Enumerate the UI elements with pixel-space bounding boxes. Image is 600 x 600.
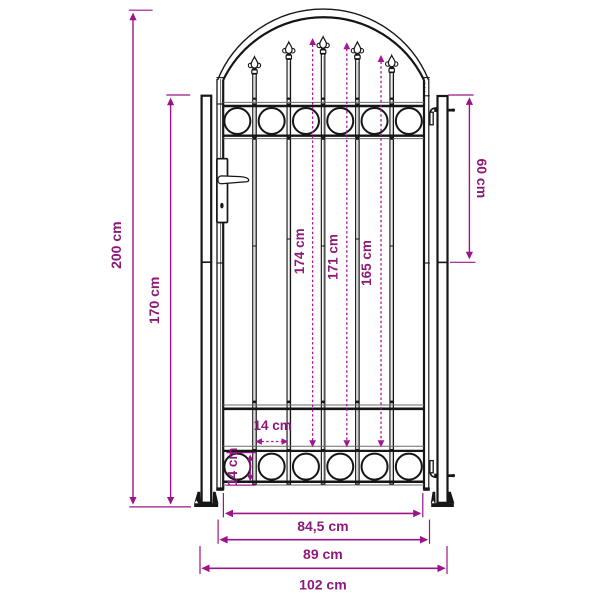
svg-text:84,5 cm: 84,5 cm — [297, 518, 348, 534]
svg-text:171 cm: 171 cm — [325, 234, 340, 280]
svg-text:200 cm: 200 cm — [108, 221, 124, 268]
svg-text:165 cm: 165 cm — [359, 240, 374, 286]
svg-text:102 cm: 102 cm — [299, 577, 346, 593]
svg-text:14 cm: 14 cm — [253, 418, 291, 433]
svg-text:89 cm: 89 cm — [303, 546, 343, 562]
svg-text:170 cm: 170 cm — [146, 277, 162, 324]
svg-text:60 cm: 60 cm — [474, 158, 490, 198]
svg-text:14 cm: 14 cm — [225, 448, 240, 486]
svg-text:174 cm: 174 cm — [292, 228, 307, 274]
